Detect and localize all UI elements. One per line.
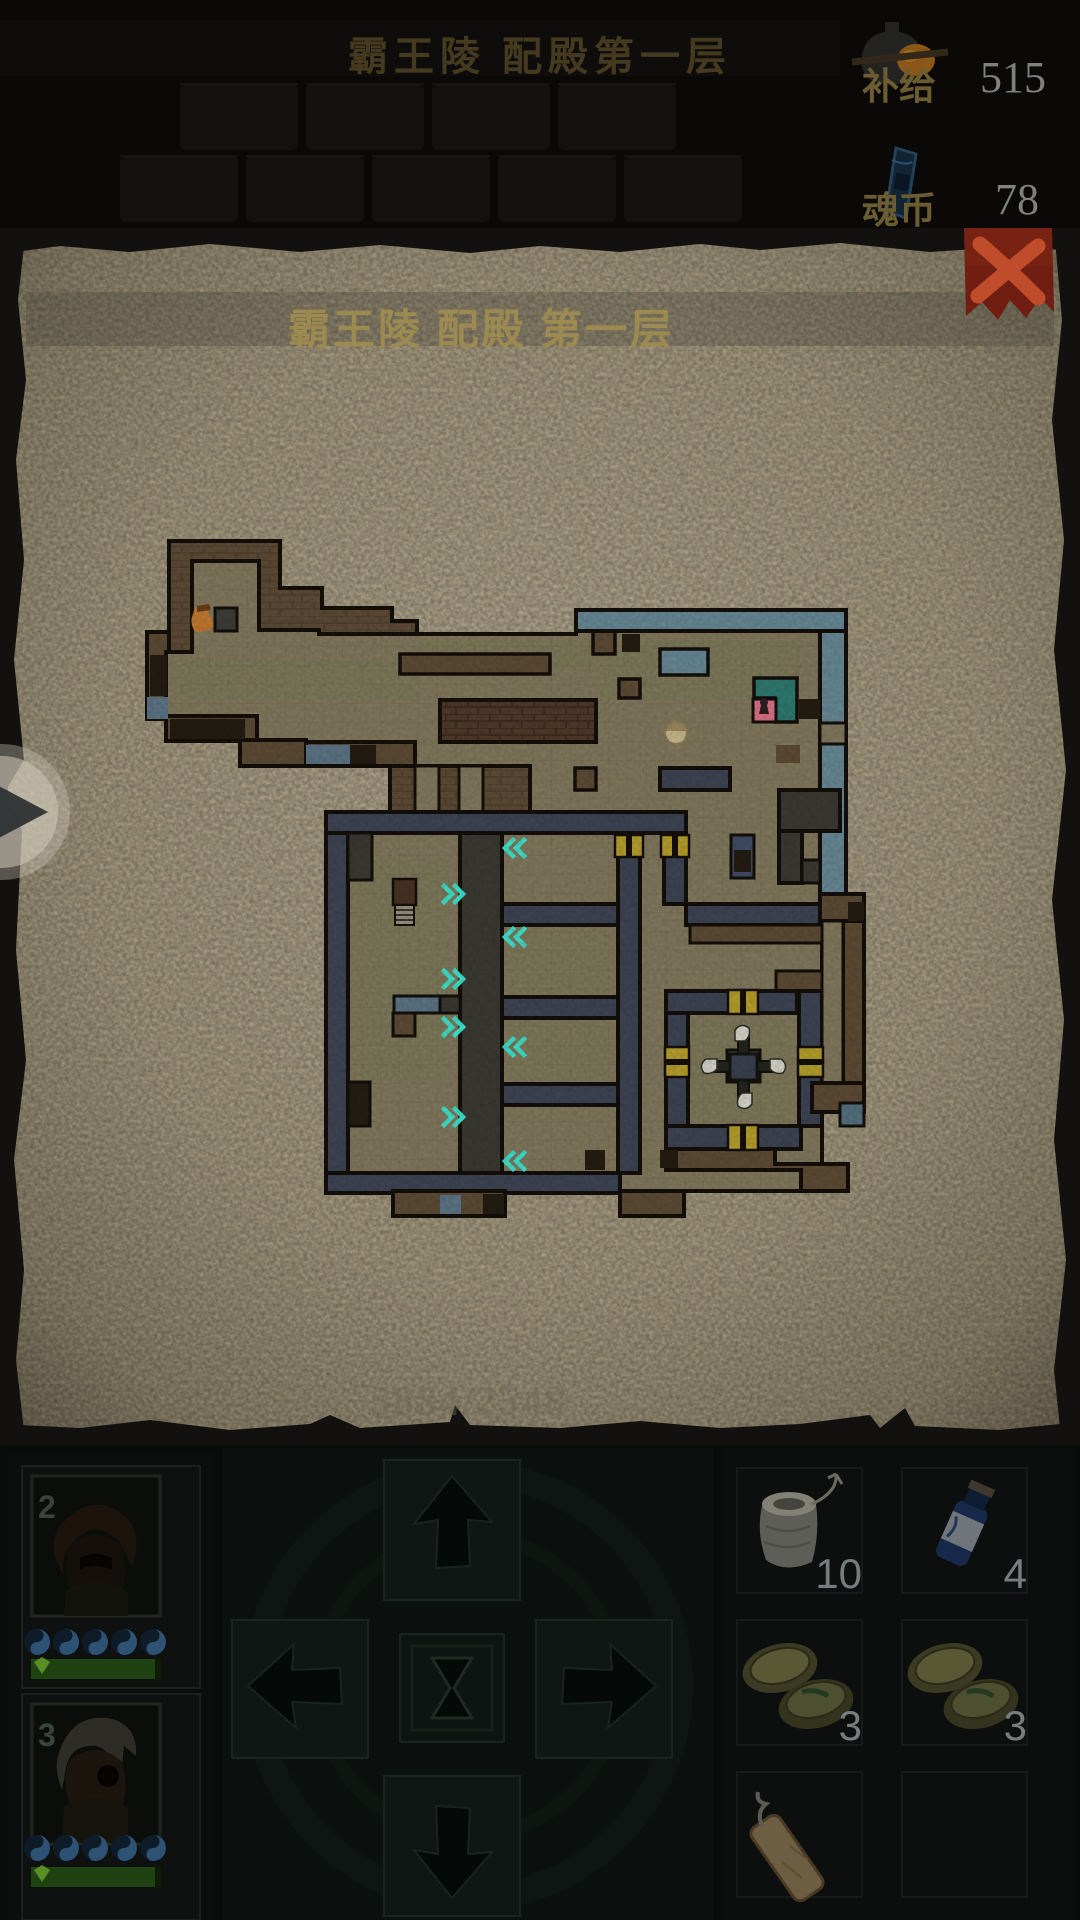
svg-text:3: 3 bbox=[38, 1717, 56, 1753]
svg-text:10: 10 bbox=[815, 1550, 862, 1597]
svg-text:4: 4 bbox=[1004, 1550, 1027, 1597]
svg-text:2: 2 bbox=[38, 1489, 56, 1525]
svg-text:3: 3 bbox=[1004, 1702, 1027, 1749]
svg-text:3: 3 bbox=[839, 1702, 862, 1749]
